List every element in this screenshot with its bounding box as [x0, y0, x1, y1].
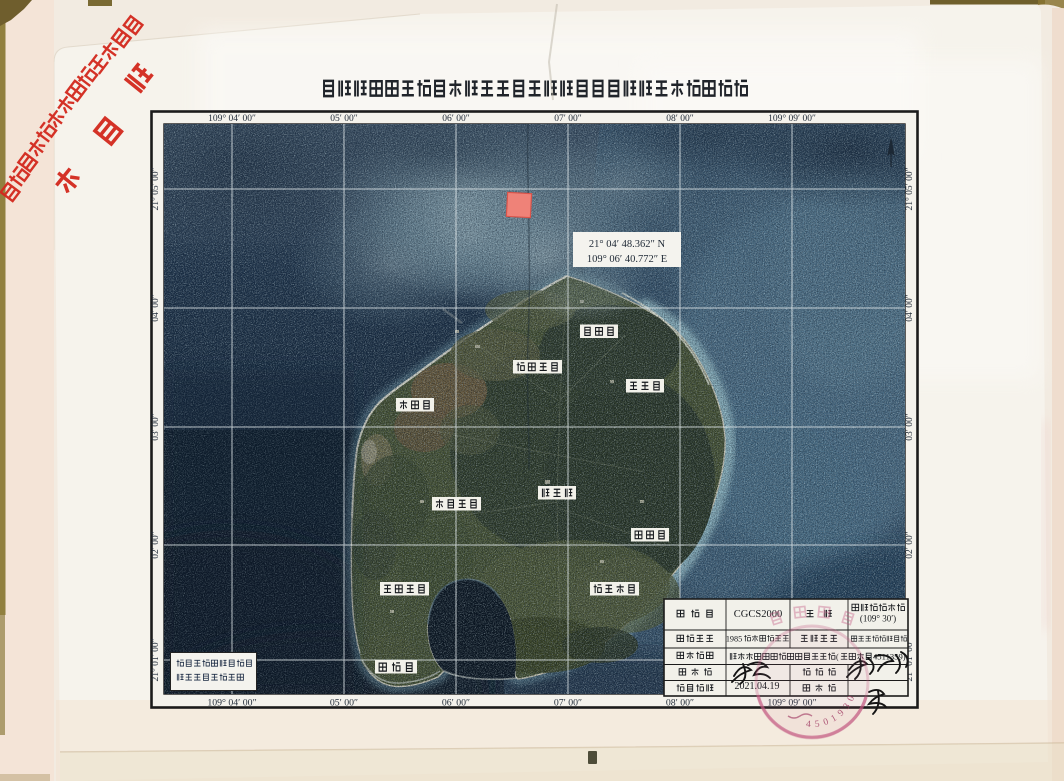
svg-text:07′ 00″: 07′ 00″: [554, 114, 581, 124]
svg-text:109° 06′ 40.772″ E: 109° 06′ 40.772″ E: [587, 254, 667, 265]
svg-text:05′ 00″: 05′ 00″: [330, 698, 358, 709]
svg-text:08′ 00″: 08′ 00″: [666, 698, 694, 709]
svg-text:109° 04′ 00″: 109° 04′ 00″: [208, 113, 256, 124]
svg-text:(109° 30′): (109° 30′): [860, 614, 896, 624]
svg-text:21° 05′ 00″: 21° 05′ 00″: [150, 167, 161, 210]
svg-text:CGCS2000: CGCS2000: [734, 609, 782, 620]
svg-text:109° 04′ 00″: 109° 04′ 00″: [207, 698, 256, 709]
svg-text:07′ 00″: 07′ 00″: [554, 698, 582, 709]
svg-text:06′ 00″: 06′ 00″: [442, 698, 470, 709]
svg-text:08′ 00″: 08′ 00″: [666, 114, 693, 124]
svg-text:06′ 00″: 06′ 00″: [442, 114, 469, 124]
svg-text:04′ 00″: 04′ 00″: [905, 294, 915, 321]
svg-text:03′ 00″: 03′ 00″: [905, 413, 915, 440]
svg-text:21° 01′ 00″: 21° 01′ 00″: [150, 638, 161, 681]
svg-text:21° 05′ 00″: 21° 05′ 00″: [904, 167, 915, 210]
svg-text:02′ 00″: 02′ 00″: [905, 531, 915, 558]
svg-text:04′ 00″: 04′ 00″: [151, 294, 161, 321]
svg-text:03′ 00″: 03′ 00″: [151, 413, 161, 440]
svg-text:02′ 00″: 02′ 00″: [151, 531, 161, 558]
svg-text:21° 04′ 48.362″ N: 21° 04′ 48.362″ N: [589, 239, 666, 250]
svg-text:109° 09′ 00″: 109° 09′ 00″: [768, 113, 816, 124]
svg-text:05′ 00″: 05′ 00″: [330, 114, 357, 124]
svg-text:1985: 1985: [726, 635, 742, 644]
